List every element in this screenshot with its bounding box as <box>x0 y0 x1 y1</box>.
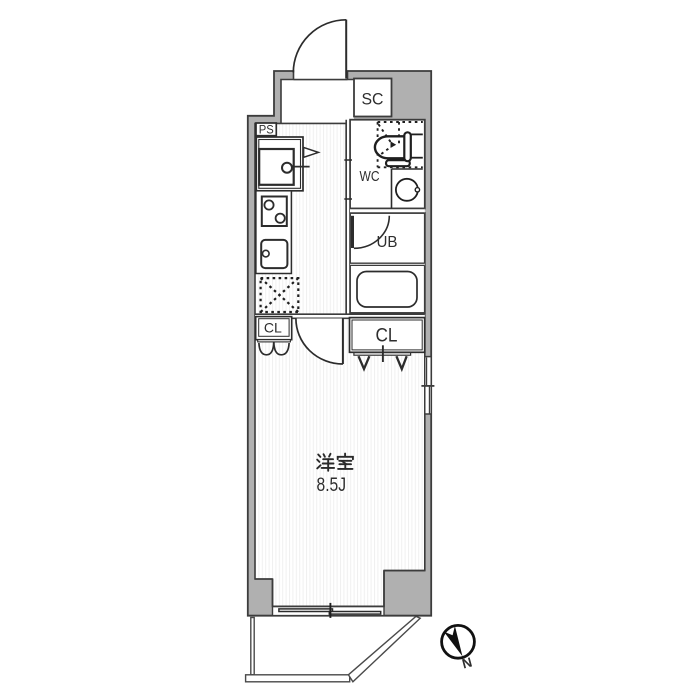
svg-text:8.5J: 8.5J <box>317 475 347 496</box>
svg-text:CL: CL <box>376 326 398 347</box>
svg-text:SC: SC <box>362 90 384 109</box>
svg-text:PS: PS <box>259 123 274 137</box>
svg-text:WC: WC <box>360 169 380 185</box>
svg-text:CL: CL <box>264 320 282 336</box>
svg-text:UB: UB <box>377 234 398 251</box>
